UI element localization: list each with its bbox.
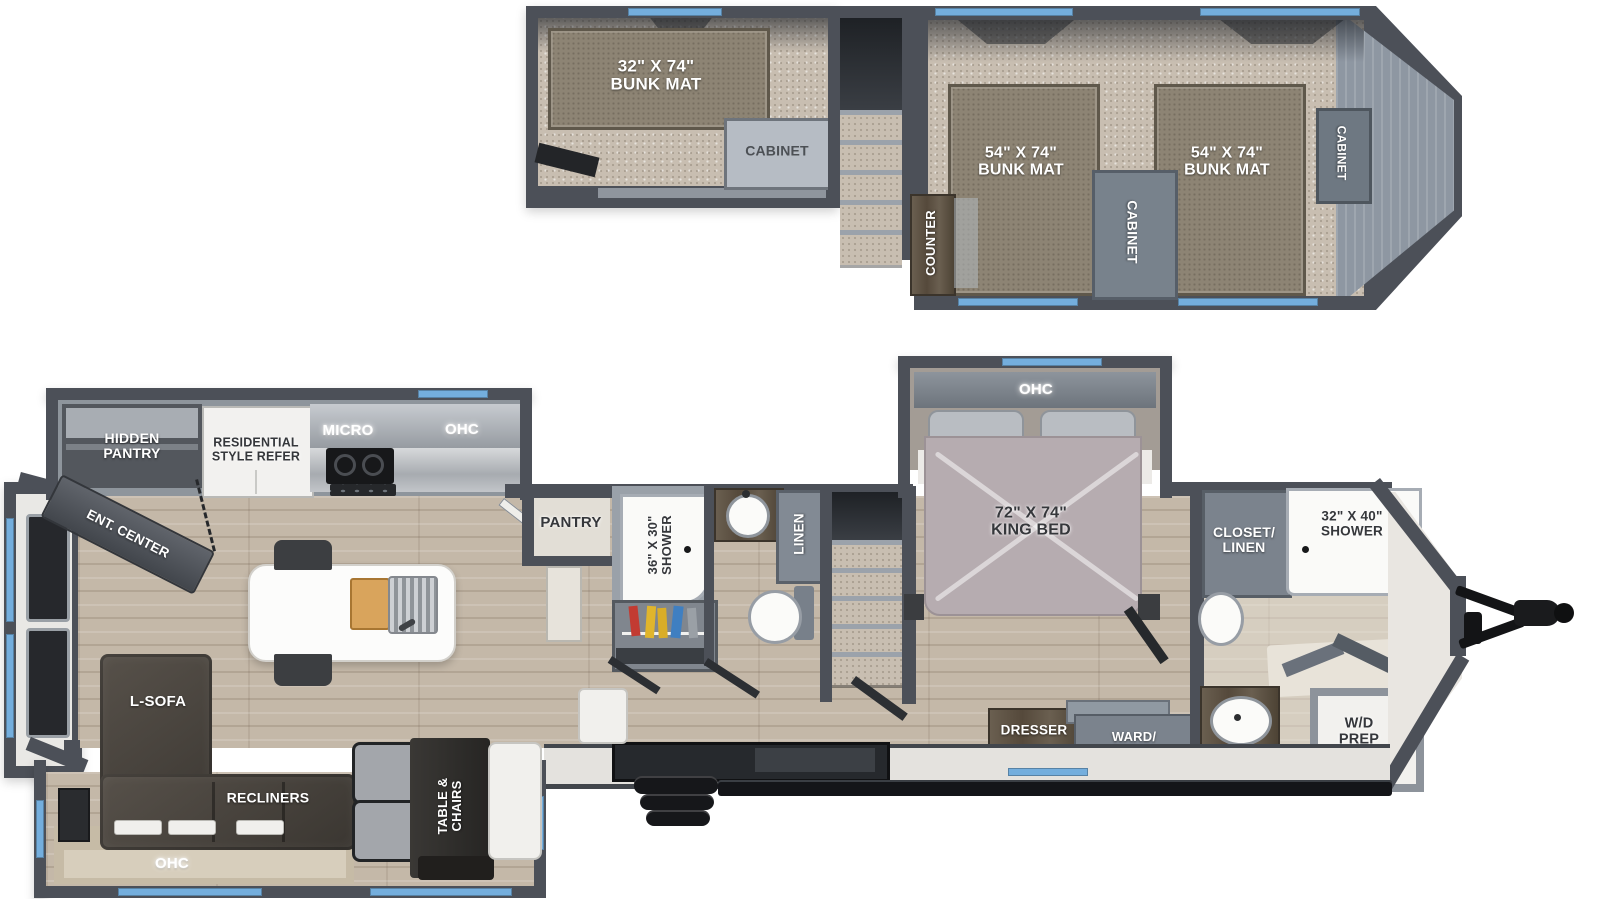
dinette-chair (352, 742, 418, 804)
island-chair-bottom (274, 654, 332, 686)
bath-right-wall (820, 486, 832, 702)
closet-base-shadow (616, 648, 708, 664)
island-chair-top (274, 540, 332, 570)
refrigerator-label: RESIDENTIAL STYLE REFER (212, 437, 300, 464)
bunk-mat-32-label: 32" X 74" BUNK MAT (611, 58, 702, 95)
kitchen-slide-window (418, 390, 488, 398)
shower-mid-label: 36" X 30" SHOWER (646, 515, 674, 575)
loft-counter-shelf (954, 198, 978, 288)
bedroom-bottom-window (1008, 768, 1088, 776)
toilet-mid (748, 590, 802, 644)
micro-label: MICRO (323, 423, 374, 439)
rear-slide-window (6, 634, 14, 738)
loft-window-bottom-right (1178, 298, 1318, 306)
entry-step (646, 810, 710, 826)
bedroom-slide-right-wall (1160, 356, 1172, 498)
sofa-cupholder-tray (236, 820, 284, 835)
loft-cabinet-center-label: CABINET (1124, 200, 1139, 264)
loft-window-top-left (628, 8, 722, 16)
rear-window-panel (26, 628, 70, 738)
booth-seat-upper (578, 688, 628, 744)
cooktop-burner (334, 454, 356, 476)
loft-cabinet-left-label: CABINET (745, 143, 809, 158)
cutting-board (350, 578, 390, 630)
bedroom-slide-window (1002, 358, 1102, 366)
refrigerator-door-split (255, 470, 257, 494)
booth-seat-lower (488, 742, 542, 860)
hitch-coupler-ball (1554, 603, 1574, 623)
bedroom-slide-left-wall (898, 356, 910, 498)
living-slide-window (370, 888, 512, 896)
dresser-label: DRESSER (1001, 724, 1068, 739)
bunk-mat-54-left-label: 54" X 74" BUNK MAT (978, 145, 1064, 180)
main-stair-landing (832, 492, 902, 540)
shower-mid-drain (684, 546, 691, 553)
living-slide-window-left (36, 800, 44, 858)
med-sink (1210, 696, 1272, 746)
dinette-chair (352, 800, 418, 862)
pantry-left-wall (522, 484, 534, 566)
recliners-label: RECLINERS (227, 790, 310, 805)
loft-stair-step (840, 230, 902, 265)
entry-step (640, 794, 714, 810)
rear-window-panel (26, 514, 70, 622)
kitchen-ohc-label: OHC (445, 422, 479, 438)
loft-stair-landing (840, 18, 902, 110)
loft-stair-left-wall (828, 6, 840, 208)
sofa-cupholder-tray (168, 820, 216, 835)
loft-counter-label: COUNTER (924, 210, 938, 276)
dinette-table-base (418, 856, 494, 880)
living-ohc-label: OHC (155, 856, 189, 872)
toilet-front (1198, 592, 1244, 646)
cooktop-burner (362, 454, 384, 476)
range-knobs (330, 484, 396, 496)
rear-wall-stub-bottom (64, 740, 80, 764)
bath-sink (726, 494, 770, 538)
living-ohc-inner (64, 850, 346, 878)
nightstand (1138, 594, 1160, 620)
l-sofa-horizontal (100, 774, 356, 850)
loft-window-top-mid (935, 8, 1073, 16)
floorplan-canvas: 32" X 74" BUNK MAT CABINET 54" X 74" BUN… (0, 0, 1600, 899)
nightstand (904, 594, 924, 620)
pantry-base-cabinet (546, 566, 582, 642)
chassis-rail (718, 780, 1392, 796)
rear-slide-window (6, 518, 14, 622)
bath-mid-divider-wall (704, 486, 714, 666)
hanging-clothes-yellow (657, 608, 668, 638)
main-stair-step (832, 652, 902, 685)
bath-sink-faucet (742, 490, 750, 498)
tongue-jack (1464, 612, 1482, 644)
pantry-bottom-wall (522, 556, 622, 566)
med-sink-faucet (1234, 714, 1241, 721)
island-sink (388, 576, 438, 634)
closet-linen-label: CLOSET/ LINEN (1213, 525, 1275, 555)
living-slide-window (118, 888, 262, 896)
pantry-label: PANTRY (540, 515, 601, 531)
entry-step (634, 776, 718, 794)
bedroom-ohc-label: OHC (1019, 382, 1053, 398)
hidden-pantry-label: HIDDEN PANTRY (103, 431, 160, 461)
loft-cabinet-right-label: CABINET (1335, 126, 1348, 181)
loft-window-bottom-left (958, 298, 1078, 306)
wd-prep-label: W/D PREP (1339, 716, 1379, 747)
loft-window-top-right (1200, 8, 1360, 16)
bunk-mat-54-right-label: 54" X 74" BUNK MAT (1184, 145, 1270, 180)
linen-label: LINEN (793, 513, 808, 555)
entry-door-panel (755, 748, 875, 772)
shower-front-drain (1302, 546, 1309, 553)
king-bed-label: 72" X 74" KING BED (991, 505, 1071, 540)
l-sofa-label: L-SOFA (130, 694, 186, 710)
shower-front-label: 32" X 40" SHOWER (1321, 509, 1383, 538)
table-chairs-label: TABLE & CHAIRS (436, 778, 464, 835)
fireplace (58, 788, 90, 842)
sofa-cupholder-tray (114, 820, 162, 835)
